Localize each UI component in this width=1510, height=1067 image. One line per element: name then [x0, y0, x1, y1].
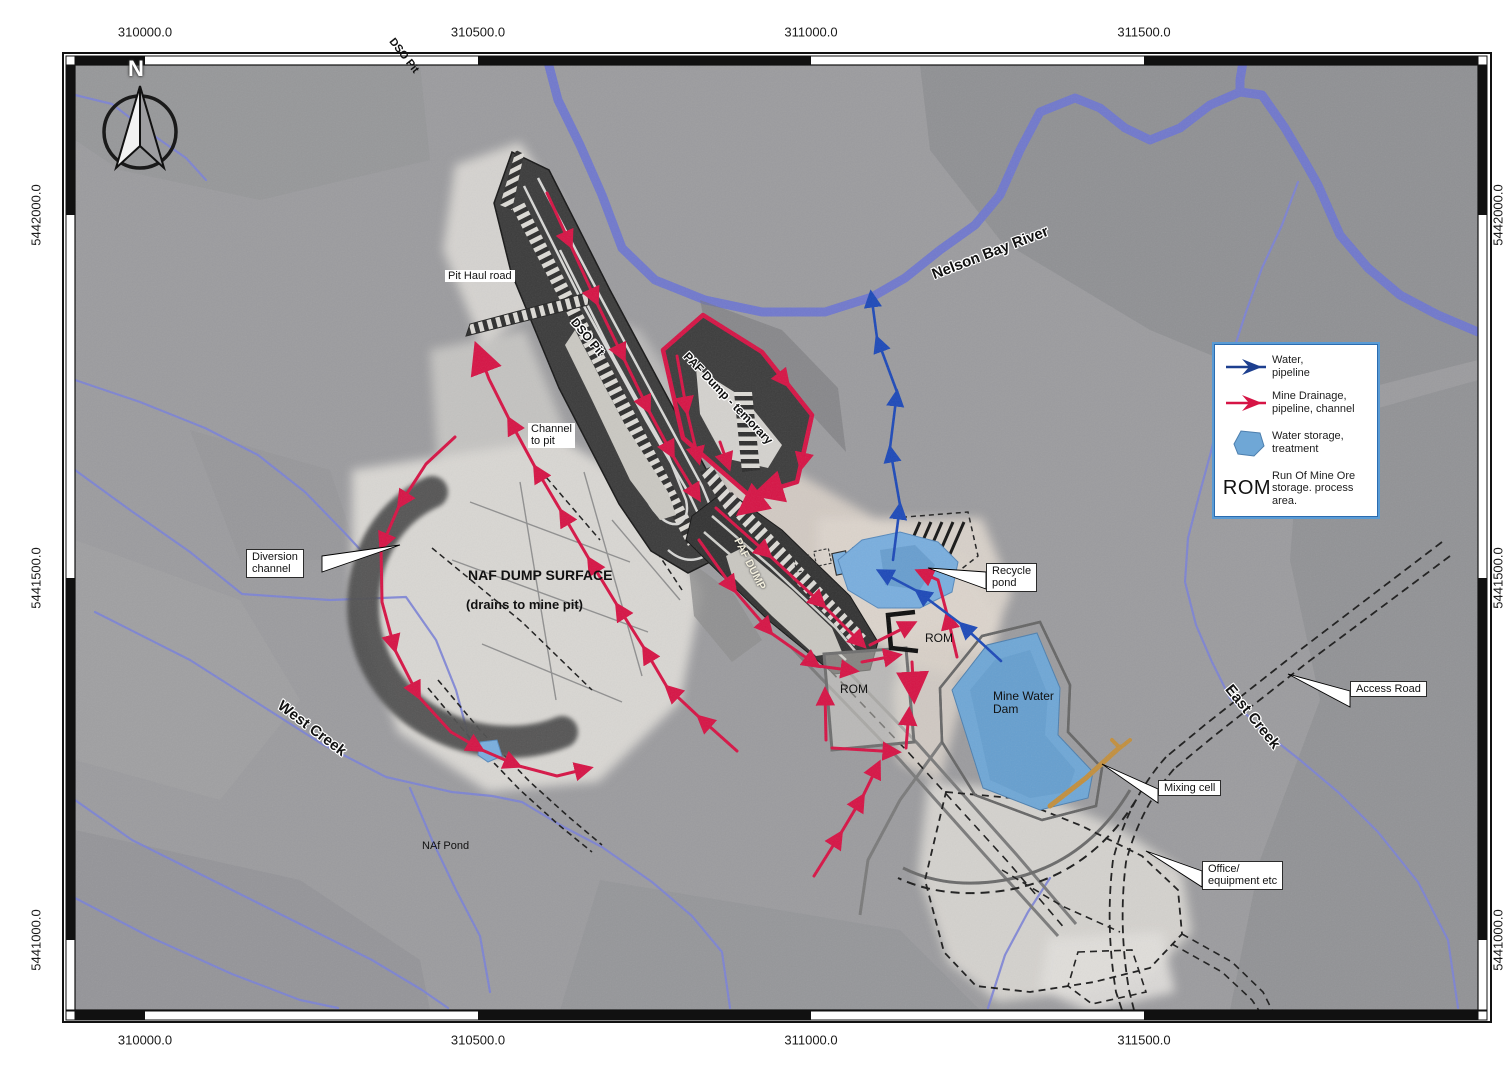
axis-label-bottom-2: 311000.0	[784, 1033, 837, 1048]
axis-label-top-1: 310500.0	[451, 25, 505, 40]
water-storage-polygon-icon	[1222, 427, 1272, 459]
legend-label: Run Of Mine Ore storage. process area.	[1272, 470, 1355, 508]
naf-dump-sub-label: (drains to mine pit)	[466, 598, 583, 613]
channel-to-pit-label: Channel to pit	[528, 423, 575, 448]
legend-label: Mine Drainage, pipeline, channel	[1272, 390, 1355, 415]
diversion-channel-label: Diversion channel	[246, 549, 304, 578]
naf-pond-label: NAf Pond	[422, 840, 469, 852]
naf-dump-title-label: NAF DUMP SURFACE	[468, 568, 612, 584]
legend-label: Water storage, treatment	[1272, 430, 1344, 455]
map-figure: DSO PitPit Haul roadDSO PitChannel to pi…	[0, 0, 1510, 1067]
legend-box: Water, pipeline Mine Drainage, pipeline,…	[1212, 342, 1380, 519]
mixing-cell-label: Mixing cell	[1158, 780, 1221, 796]
water-pipeline-arrow-icon	[1222, 357, 1272, 377]
axis-label-left-1: 5441500.0	[29, 547, 44, 608]
axis-label-bottom-1: 310500.0	[451, 1033, 505, 1048]
north-arrow-label: N	[128, 56, 144, 82]
legend-item-water-pipeline: Water, pipeline	[1222, 354, 1370, 379]
axis-label-bottom-0: 310000.0	[118, 1033, 172, 1048]
legend-item-mine-drainage: Mine Drainage, pipeline, channel	[1222, 390, 1370, 415]
legend-label: Water, pipeline	[1272, 354, 1310, 379]
axis-label-right-1: 5441500.0	[1491, 547, 1506, 608]
access-road-label: Access Road	[1350, 681, 1427, 697]
rom-lower-label: ROM	[840, 683, 868, 696]
rom-symbol: ROM	[1222, 477, 1272, 500]
map-scene	[0, 0, 1510, 1067]
axis-label-left-0: 5442000.0	[29, 184, 44, 245]
legend-item-water-storage: Water storage, treatment	[1222, 427, 1370, 459]
axis-label-top-0: 310000.0	[118, 25, 172, 40]
recycle-pond-label: Recycle pond	[986, 563, 1037, 592]
axis-label-top-3: 311500.0	[1117, 25, 1170, 40]
pit-haul-road-label: Pit Haul road	[445, 270, 515, 282]
rom-upper-label: ROM	[925, 632, 953, 645]
axis-label-left-2: 5441000.0	[29, 909, 44, 970]
axis-label-right-0: 5442000.0	[1491, 184, 1506, 245]
legend-item-rom: ROM Run Of Mine Ore storage. process are…	[1222, 470, 1370, 508]
axis-label-top-2: 311000.0	[784, 25, 837, 40]
axis-label-bottom-3: 311500.0	[1117, 1033, 1170, 1048]
axis-label-right-2: 5441000.0	[1491, 909, 1506, 970]
mine-drainage-arrow-icon	[1222, 393, 1272, 413]
office-equipment-label: Office/ equipment etc	[1202, 861, 1283, 890]
mine-water-dam-label: Mine Water Dam	[993, 690, 1054, 717]
